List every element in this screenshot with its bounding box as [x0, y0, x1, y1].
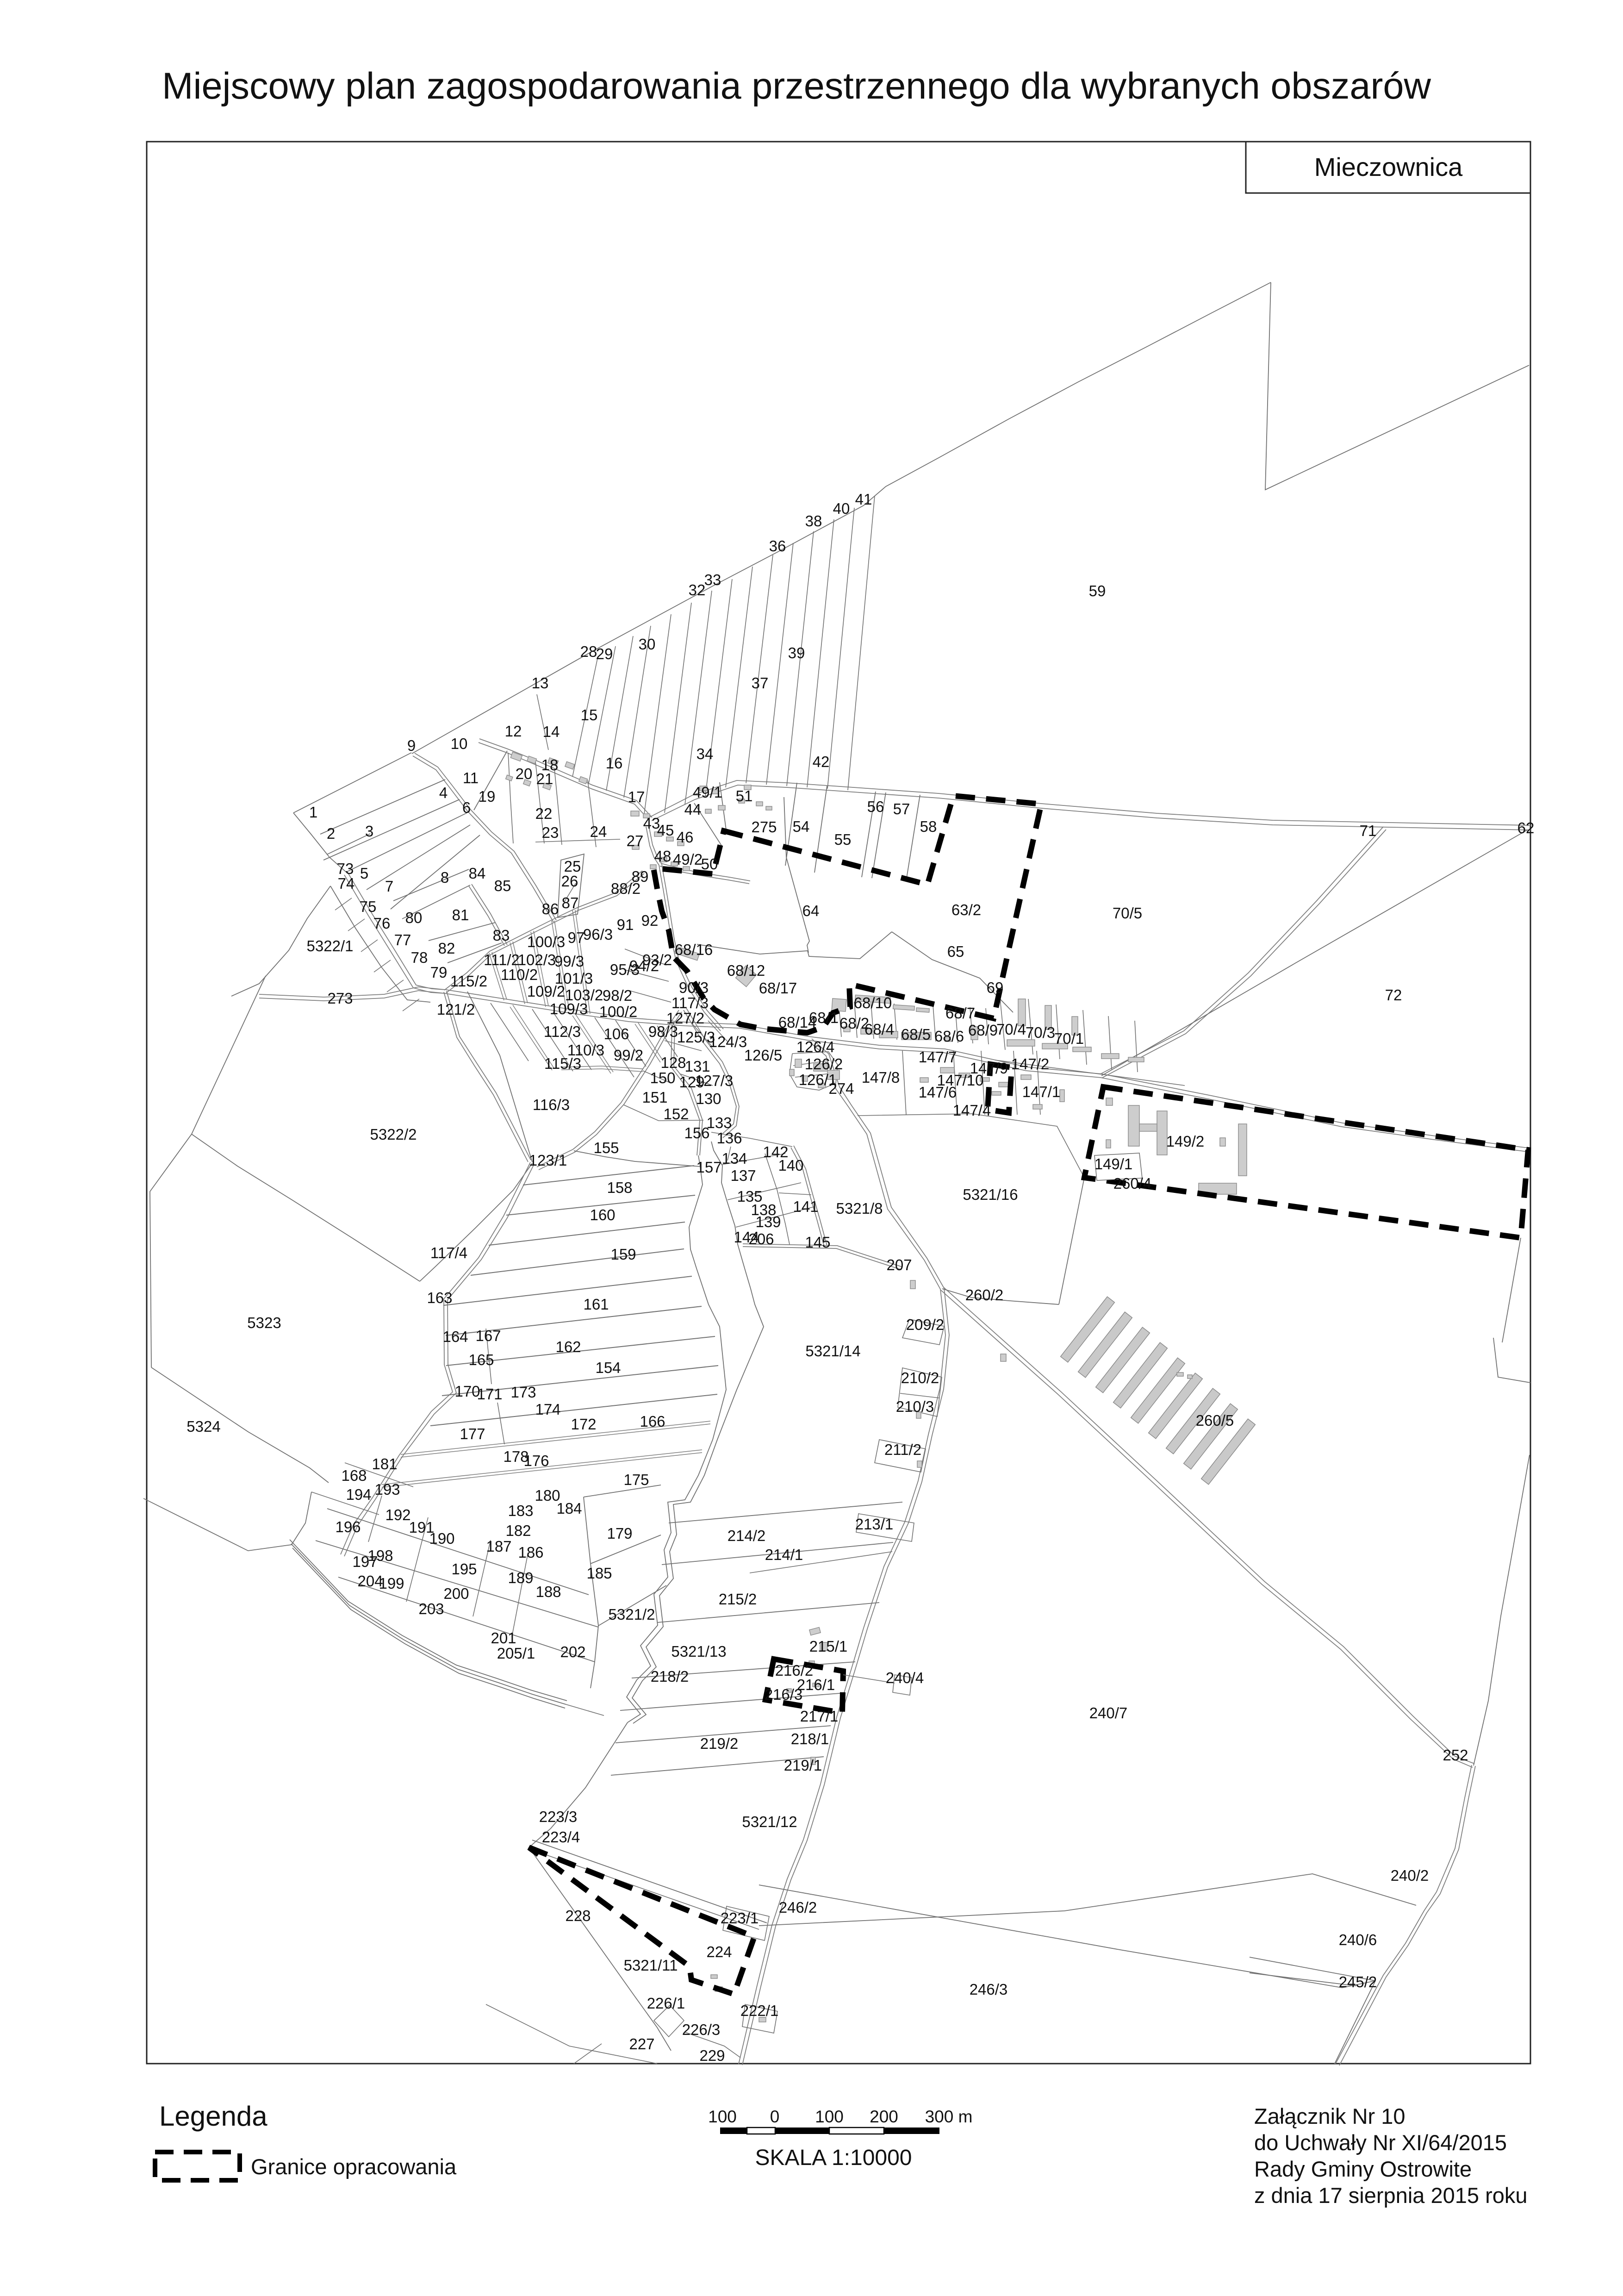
svg-text:29: 29 [596, 645, 613, 662]
svg-text:147/8: 147/8 [862, 1069, 900, 1086]
svg-text:30: 30 [639, 636, 656, 653]
svg-text:166: 166 [640, 1413, 665, 1430]
svg-text:17: 17 [628, 788, 645, 805]
svg-text:12: 12 [505, 723, 522, 740]
svg-text:68/6: 68/6 [934, 1028, 964, 1045]
svg-text:115/3: 115/3 [544, 1055, 581, 1072]
svg-text:182: 182 [505, 1522, 531, 1539]
svg-text:178: 178 [503, 1448, 529, 1465]
svg-text:86: 86 [542, 900, 559, 917]
svg-text:44: 44 [684, 801, 702, 818]
svg-text:126/2: 126/2 [805, 1055, 843, 1073]
svg-text:300 m: 300 m [925, 2107, 973, 2126]
svg-text:160: 160 [590, 1206, 615, 1223]
svg-text:204: 204 [357, 1572, 383, 1590]
svg-text:3: 3 [365, 823, 373, 840]
svg-text:90/3: 90/3 [679, 979, 709, 996]
svg-text:218/1: 218/1 [791, 1730, 829, 1747]
svg-text:155: 155 [593, 1139, 619, 1156]
svg-text:76: 76 [373, 915, 391, 932]
svg-text:227: 227 [629, 2035, 654, 2053]
svg-text:142: 142 [763, 1143, 788, 1160]
svg-text:77: 77 [394, 931, 411, 948]
svg-text:62: 62 [1517, 819, 1535, 836]
svg-text:168: 168 [341, 1467, 367, 1484]
svg-text:9: 9 [407, 737, 416, 754]
svg-text:21: 21 [536, 770, 553, 787]
svg-text:48: 48 [654, 848, 672, 865]
svg-text:22: 22 [535, 805, 553, 822]
svg-text:Rady Gminy Ostrowite: Rady Gminy Ostrowite [1254, 2157, 1472, 2181]
svg-text:183: 183 [508, 1502, 533, 1519]
svg-text:96/3: 96/3 [583, 926, 613, 943]
svg-text:45: 45 [657, 822, 674, 839]
svg-text:23: 23 [542, 824, 559, 841]
svg-text:54: 54 [793, 818, 810, 835]
svg-text:14: 14 [543, 723, 560, 740]
svg-text:109/2: 109/2 [527, 983, 566, 1000]
svg-text:99/2: 99/2 [614, 1047, 643, 1064]
svg-text:126/5: 126/5 [744, 1047, 783, 1064]
svg-text:51: 51 [736, 787, 753, 805]
svg-text:246/3: 246/3 [970, 1981, 1008, 1998]
svg-text:100/2: 100/2 [599, 1003, 638, 1020]
svg-text:68/16: 68/16 [675, 941, 713, 958]
svg-text:97: 97 [568, 929, 585, 946]
svg-text:82: 82 [438, 940, 455, 957]
svg-text:106: 106 [603, 1025, 629, 1042]
svg-text:152: 152 [663, 1105, 689, 1123]
svg-text:49/2: 49/2 [673, 851, 703, 868]
svg-text:8: 8 [441, 869, 449, 886]
svg-text:222/1: 222/1 [740, 2002, 779, 2019]
svg-text:26: 26 [561, 873, 578, 890]
svg-text:215/2: 215/2 [719, 1591, 757, 1608]
svg-text:70/5: 70/5 [1113, 905, 1142, 922]
svg-text:223/3: 223/3 [539, 1808, 578, 1825]
svg-text:5321/14: 5321/14 [805, 1342, 860, 1360]
svg-text:19: 19 [479, 788, 496, 805]
svg-text:123/1: 123/1 [529, 1152, 567, 1169]
svg-text:112/3: 112/3 [544, 1023, 581, 1040]
svg-text:195: 195 [451, 1560, 477, 1578]
svg-text:71: 71 [1360, 822, 1377, 839]
svg-text:275: 275 [751, 818, 777, 836]
svg-text:147/4: 147/4 [953, 1102, 991, 1119]
svg-text:158: 158 [607, 1179, 632, 1196]
svg-text:149/1: 149/1 [1094, 1155, 1133, 1173]
svg-text:40: 40 [833, 500, 850, 517]
svg-text:109/3: 109/3 [550, 1000, 588, 1017]
svg-text:117/3: 117/3 [672, 994, 709, 1011]
svg-text:209/2: 209/2 [906, 1316, 945, 1333]
svg-text:34: 34 [696, 745, 714, 762]
svg-text:99/3: 99/3 [554, 953, 584, 970]
svg-text:24: 24 [590, 823, 607, 840]
svg-text:200: 200 [870, 2107, 898, 2126]
svg-text:5321/16: 5321/16 [963, 1186, 1018, 1203]
svg-text:111/2: 111/2 [484, 951, 520, 968]
svg-text:203: 203 [418, 1600, 444, 1617]
svg-text:68/10: 68/10 [854, 994, 892, 1011]
svg-text:164: 164 [442, 1328, 468, 1345]
svg-text:137: 137 [730, 1167, 756, 1184]
svg-text:13: 13 [532, 674, 549, 692]
svg-text:Legenda: Legenda [159, 2101, 267, 2132]
svg-text:246/2: 246/2 [779, 1899, 817, 1916]
svg-text:186: 186 [518, 1544, 543, 1561]
svg-text:134: 134 [721, 1150, 747, 1167]
svg-text:245/2: 245/2 [1339, 1973, 1377, 1990]
svg-text:5: 5 [360, 865, 368, 882]
svg-text:100/3: 100/3 [527, 933, 566, 950]
svg-text:196: 196 [335, 1518, 361, 1535]
svg-text:5323: 5323 [247, 1314, 281, 1331]
svg-text:10: 10 [451, 735, 468, 752]
svg-text:Miejscowy plan zagospodarowani: Miejscowy plan zagospodarowania przestrz… [162, 65, 1431, 107]
svg-text:68/7: 68/7 [945, 1004, 975, 1022]
svg-text:216/3: 216/3 [765, 1686, 803, 1703]
svg-text:174: 174 [535, 1401, 560, 1418]
svg-text:Granice opracowania: Granice opracowania [251, 2154, 457, 2179]
svg-text:191: 191 [409, 1519, 434, 1536]
svg-text:110/2: 110/2 [501, 966, 538, 983]
svg-text:33: 33 [704, 571, 721, 588]
svg-text:229: 229 [699, 2047, 725, 2064]
svg-text:194: 194 [346, 1486, 371, 1503]
svg-text:7: 7 [385, 878, 393, 895]
svg-text:125/3: 125/3 [677, 1029, 715, 1046]
svg-text:260/2: 260/2 [965, 1286, 1004, 1304]
svg-text:133: 133 [706, 1114, 732, 1131]
svg-text:206: 206 [748, 1230, 774, 1248]
svg-text:74: 74 [338, 875, 355, 892]
svg-text:68/14: 68/14 [778, 1014, 817, 1031]
svg-text:131: 131 [684, 1058, 710, 1075]
svg-text:5321/8: 5321/8 [836, 1200, 883, 1217]
svg-text:5321/2: 5321/2 [609, 1606, 655, 1623]
svg-text:147/10: 147/10 [937, 1072, 984, 1089]
svg-text:78: 78 [411, 949, 428, 966]
svg-text:141: 141 [793, 1198, 818, 1215]
svg-text:273: 273 [327, 990, 353, 1007]
svg-text:139: 139 [755, 1213, 781, 1230]
svg-text:240/2: 240/2 [1391, 1867, 1429, 1884]
svg-text:42: 42 [813, 753, 830, 770]
svg-text:100: 100 [708, 2107, 737, 2126]
svg-text:226/3: 226/3 [682, 2021, 721, 2038]
svg-text:136: 136 [716, 1129, 742, 1147]
svg-text:240/6: 240/6 [1339, 1931, 1377, 1948]
svg-text:192: 192 [385, 1506, 410, 1523]
svg-text:216/2: 216/2 [775, 1662, 814, 1679]
svg-text:0: 0 [770, 2107, 780, 2126]
svg-text:126/4: 126/4 [796, 1038, 835, 1055]
svg-text:5324: 5324 [187, 1418, 220, 1435]
svg-text:129: 129 [679, 1073, 704, 1091]
svg-text:37: 37 [752, 674, 769, 692]
svg-text:68/5: 68/5 [901, 1026, 931, 1043]
svg-text:159: 159 [610, 1246, 636, 1263]
svg-text:83: 83 [493, 927, 510, 944]
svg-text:184: 184 [556, 1500, 582, 1517]
svg-text:68/4: 68/4 [864, 1021, 894, 1038]
svg-text:260/4: 260/4 [1113, 1175, 1152, 1192]
svg-text:16: 16 [606, 755, 623, 772]
svg-text:200: 200 [443, 1585, 469, 1602]
svg-text:68/17: 68/17 [759, 980, 797, 997]
svg-text:56: 56 [867, 798, 884, 815]
svg-text:117/4: 117/4 [430, 1244, 467, 1261]
svg-text:6: 6 [462, 799, 471, 816]
svg-text:85: 85 [494, 877, 511, 894]
svg-text:65: 65 [947, 943, 964, 960]
svg-text:210/3: 210/3 [896, 1398, 934, 1415]
svg-text:1: 1 [309, 804, 317, 821]
svg-text:98/2: 98/2 [603, 987, 632, 1004]
svg-text:228: 228 [565, 1907, 591, 1924]
svg-text:215/1: 215/1 [809, 1638, 848, 1655]
svg-text:214/2: 214/2 [728, 1527, 766, 1544]
svg-text:72: 72 [1385, 986, 1402, 1004]
svg-text:75: 75 [360, 898, 377, 915]
svg-text:145: 145 [805, 1234, 830, 1251]
svg-text:198: 198 [367, 1547, 393, 1564]
svg-text:173: 173 [510, 1384, 536, 1401]
svg-text:20: 20 [516, 765, 533, 782]
svg-text:170: 170 [454, 1383, 480, 1400]
svg-text:81: 81 [452, 906, 469, 923]
svg-text:89: 89 [632, 868, 649, 885]
svg-text:100: 100 [815, 2107, 844, 2126]
svg-text:217/1: 217/1 [800, 1708, 839, 1725]
svg-text:95/3: 95/3 [610, 961, 640, 978]
svg-text:218/2: 218/2 [651, 1668, 689, 1685]
svg-text:161: 161 [583, 1296, 609, 1313]
svg-text:201: 201 [491, 1629, 516, 1647]
svg-text:188: 188 [535, 1583, 561, 1600]
svg-text:46: 46 [677, 829, 694, 846]
svg-text:163: 163 [427, 1289, 452, 1306]
svg-text:128: 128 [660, 1054, 686, 1071]
svg-text:260/5: 260/5 [1196, 1412, 1234, 1429]
svg-text:28: 28 [580, 643, 597, 660]
svg-text:15: 15 [581, 706, 598, 724]
svg-text:187: 187 [486, 1538, 511, 1555]
svg-text:211/2: 211/2 [884, 1441, 921, 1458]
svg-text:274: 274 [828, 1080, 854, 1097]
svg-text:2: 2 [327, 825, 335, 842]
svg-text:68/9: 68/9 [968, 1022, 998, 1039]
svg-text:91: 91 [617, 916, 634, 933]
svg-text:70/4: 70/4 [996, 1021, 1026, 1038]
svg-text:223/1: 223/1 [721, 1909, 759, 1927]
svg-text:205/1: 205/1 [497, 1645, 535, 1662]
svg-text:z dnia 17 sierpnia 2015 roku: z dnia 17 sierpnia 2015 roku [1254, 2183, 1528, 2208]
svg-text:189: 189 [508, 1569, 533, 1586]
svg-text:172: 172 [571, 1416, 596, 1433]
svg-text:157: 157 [696, 1159, 721, 1176]
svg-text:4: 4 [439, 784, 448, 801]
svg-text:87: 87 [562, 894, 579, 911]
svg-text:84: 84 [469, 865, 486, 882]
svg-text:181: 181 [372, 1455, 397, 1472]
svg-text:49/1: 49/1 [693, 784, 722, 801]
svg-text:57: 57 [893, 800, 910, 817]
svg-text:150: 150 [650, 1069, 675, 1086]
svg-text:27: 27 [627, 832, 644, 849]
svg-text:219/1: 219/1 [784, 1757, 822, 1774]
svg-text:193: 193 [374, 1481, 400, 1498]
svg-text:147/2: 147/2 [1011, 1055, 1050, 1073]
svg-text:68/12: 68/12 [727, 962, 765, 979]
svg-text:116/3: 116/3 [533, 1096, 570, 1113]
svg-text:240/4: 240/4 [886, 1669, 924, 1686]
svg-text:219/2: 219/2 [700, 1735, 739, 1752]
svg-text:177: 177 [460, 1425, 485, 1442]
svg-text:5321/12: 5321/12 [742, 1813, 797, 1830]
svg-text:171: 171 [477, 1385, 502, 1403]
svg-text:224: 224 [706, 1943, 732, 1960]
svg-text:175: 175 [623, 1471, 649, 1488]
svg-text:Mieczownica: Mieczownica [1314, 152, 1463, 181]
svg-text:121/2: 121/2 [437, 1001, 475, 1018]
svg-text:162: 162 [555, 1338, 581, 1355]
svg-text:Załącznik Nr 10: Załącznik Nr 10 [1254, 2104, 1405, 2128]
svg-text:167: 167 [475, 1327, 501, 1344]
svg-text:223/4: 223/4 [542, 1828, 580, 1846]
svg-text:50: 50 [701, 855, 718, 873]
svg-text:252: 252 [1443, 1747, 1468, 1764]
svg-text:115/2: 115/2 [450, 973, 487, 990]
svg-text:210/2: 210/2 [901, 1369, 939, 1386]
svg-text:39: 39 [788, 644, 805, 661]
svg-text:55: 55 [834, 831, 852, 848]
svg-text:165: 165 [468, 1351, 494, 1368]
svg-text:do Uchwały Nr XI/64/2015: do Uchwały Nr XI/64/2015 [1254, 2130, 1507, 2155]
svg-text:59: 59 [1089, 582, 1106, 599]
svg-text:127/2: 127/2 [666, 1010, 705, 1027]
svg-text:69: 69 [987, 979, 1004, 996]
svg-text:11: 11 [463, 769, 479, 786]
svg-text:70/3: 70/3 [1026, 1024, 1055, 1041]
svg-text:207: 207 [886, 1256, 912, 1273]
svg-text:240/7: 240/7 [1089, 1704, 1128, 1722]
svg-text:213/1: 213/1 [855, 1516, 894, 1533]
svg-text:226/1: 226/1 [647, 1995, 685, 2012]
svg-text:5321/11: 5321/11 [624, 1957, 678, 1974]
svg-text:179: 179 [607, 1525, 632, 1542]
svg-text:5322/2: 5322/2 [370, 1126, 417, 1143]
svg-text:63/2: 63/2 [951, 901, 981, 918]
svg-text:5322/1: 5322/1 [307, 937, 354, 955]
svg-text:58: 58 [920, 818, 937, 835]
svg-text:214/1: 214/1 [765, 1546, 803, 1563]
svg-text:147/7: 147/7 [919, 1048, 957, 1066]
svg-text:70/1: 70/1 [1054, 1030, 1084, 1047]
svg-text:92: 92 [641, 912, 659, 929]
svg-text:130: 130 [696, 1090, 721, 1107]
svg-text:202: 202 [560, 1643, 585, 1660]
svg-text:185: 185 [586, 1565, 612, 1582]
svg-text:149/2: 149/2 [1166, 1133, 1205, 1150]
svg-text:38: 38 [805, 512, 822, 530]
svg-text:151: 151 [642, 1089, 667, 1106]
svg-text:80: 80 [405, 909, 423, 926]
svg-text:5321/13: 5321/13 [671, 1643, 726, 1660]
svg-text:79: 79 [430, 964, 448, 981]
svg-text:32: 32 [689, 581, 706, 599]
svg-text:154: 154 [595, 1359, 621, 1376]
svg-text:36: 36 [769, 537, 786, 555]
svg-text:SKALA 1:10000: SKALA 1:10000 [755, 2146, 912, 2170]
svg-text:41: 41 [855, 491, 872, 508]
svg-text:147/1: 147/1 [1022, 1083, 1061, 1100]
svg-text:64: 64 [802, 902, 820, 919]
svg-text:156: 156 [684, 1124, 709, 1142]
